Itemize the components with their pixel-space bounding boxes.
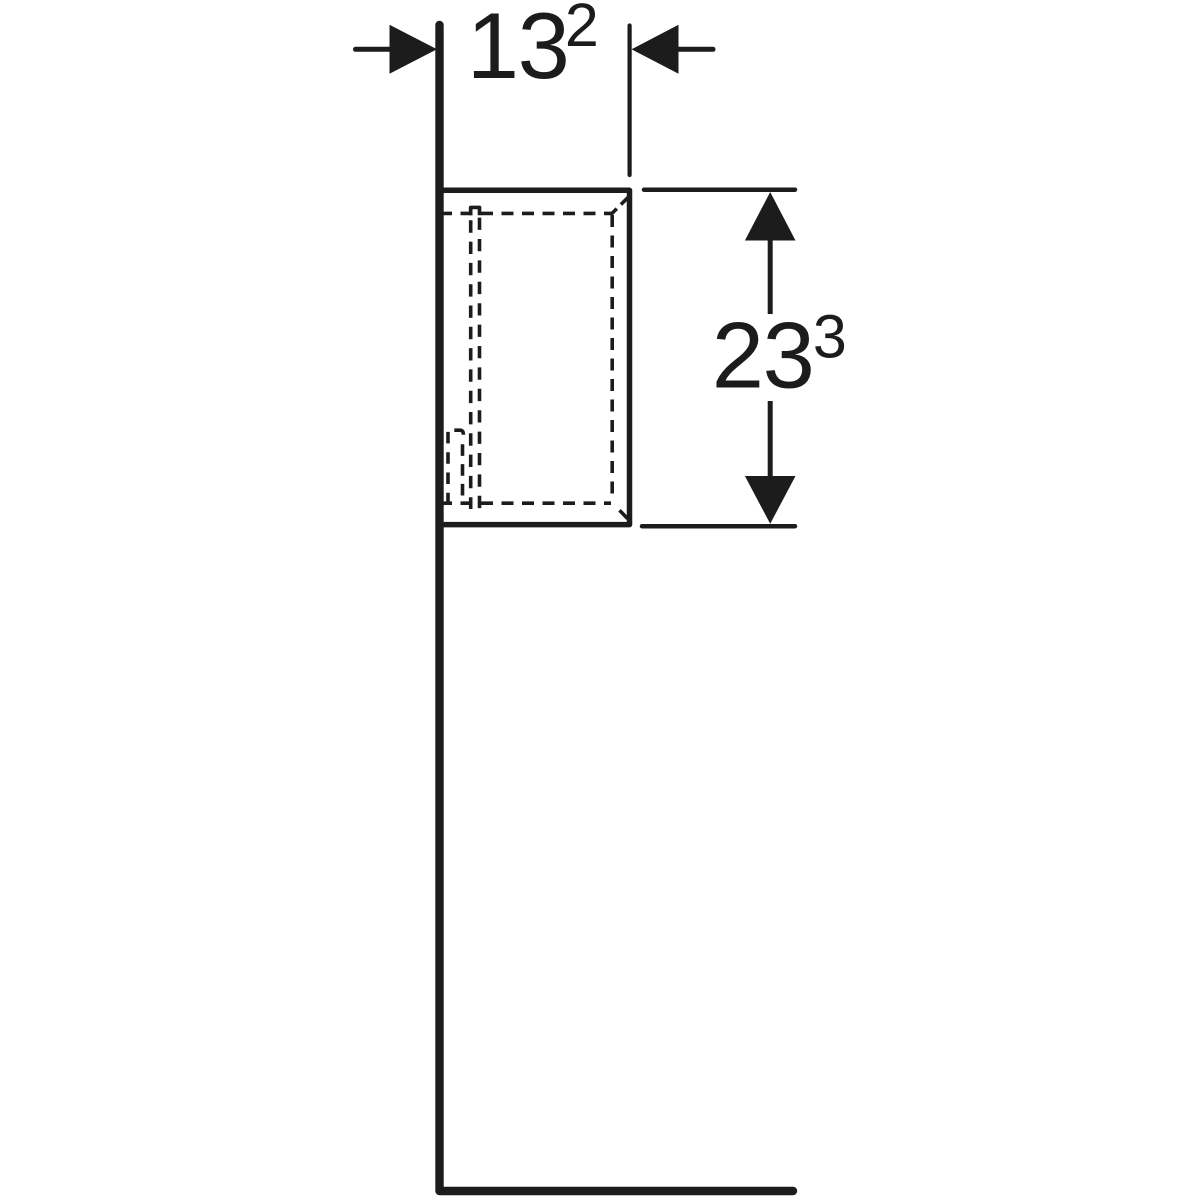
svg-text:13: 13 <box>467 0 569 98</box>
svg-text:23: 23 <box>712 302 814 407</box>
svg-text:3: 3 <box>813 302 847 370</box>
svg-text:2: 2 <box>565 0 599 59</box>
